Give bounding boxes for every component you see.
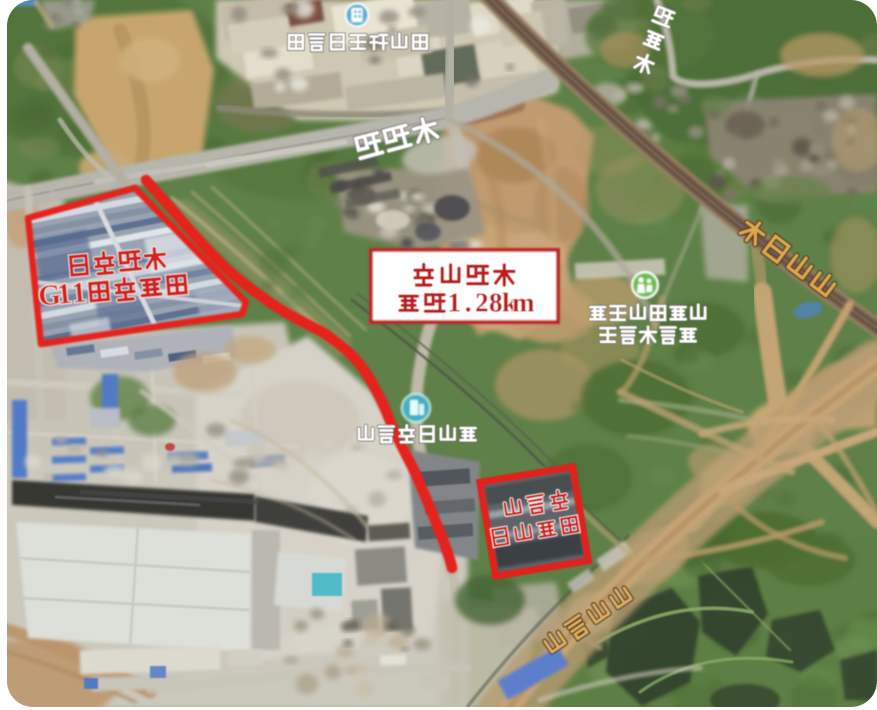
svg-text:2: 2 <box>475 287 489 317</box>
svg-text:1: 1 <box>70 276 87 309</box>
svg-text:1: 1 <box>448 287 462 317</box>
svg-text:m: m <box>512 287 535 317</box>
svg-text:8: 8 <box>489 287 503 317</box>
svg-text:.: . <box>465 287 472 317</box>
